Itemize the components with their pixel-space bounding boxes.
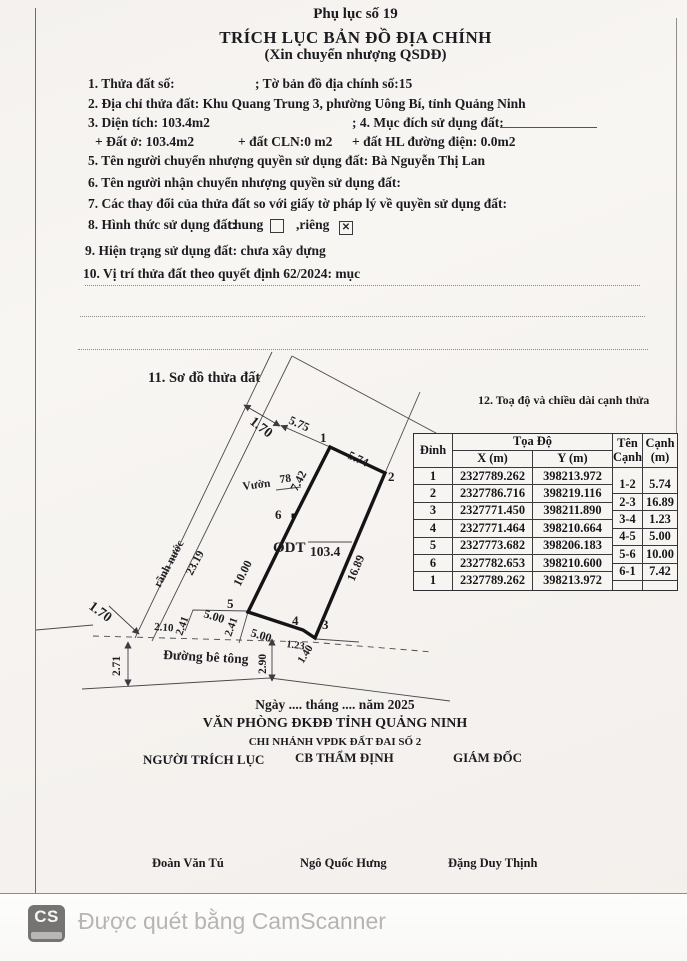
item-8-chung-label: chung [228, 217, 263, 233]
sketch-label: 7.42 [287, 468, 309, 493]
camscanner-caption: Được quét bằng CamScanner [78, 908, 386, 935]
sketch-label: 5.00 [249, 625, 273, 645]
item-8-label: 8. Hình thức sử dụng đất: [88, 217, 236, 233]
dim-1-70-bottom-arrow [109, 606, 139, 634]
camscanner-logo-icon: CS [28, 905, 65, 942]
branch-name: CHI NHÁNH VPDK ĐẤT ĐAI SỐ 2 [35, 736, 635, 748]
sketch-label: 1 [320, 430, 327, 445]
sketch-label: 5 [227, 596, 234, 611]
sketch-label: 2.41 [174, 615, 192, 637]
edge-name: 3-4 [613, 511, 643, 528]
edge-length: 1.23 [643, 511, 677, 528]
vertex-y: 398211.890 [533, 503, 613, 520]
sketch-label: Vườn [242, 478, 272, 493]
left-boundary-segment [36, 625, 93, 630]
role-appraiser: CB THẨM ĐỊNH [295, 750, 394, 766]
sketch-label: 5.75 [287, 413, 312, 434]
vertex-id: 1 [414, 468, 453, 485]
edge-name: 5-6 [613, 546, 643, 563]
item-10: 10. Vị trí thửa đất theo quyết định 62/2… [83, 266, 360, 282]
item-5: 5. Tên người chuyển nhượng quyền sử dụng… [88, 153, 485, 169]
office-name: VĂN PHÒNG ĐKĐĐ TỈNH QUẢNG NINH [35, 716, 635, 732]
sketch-label: Đường bê tông [163, 647, 249, 666]
drain-line-left [135, 352, 272, 638]
sketch-label: 2.41 [223, 616, 241, 638]
coordinate-table: ĐỉnhTọa ĐộX (m)Y (m)TênCạnhCạnh(m)123277… [413, 433, 678, 591]
edge-stub [643, 468, 677, 477]
name-director: Đặng Duy Thịnh [448, 856, 537, 871]
sketch-label: 3 [322, 617, 329, 632]
item-2: 2. Địa chỉ thửa đất: Khu Quang Trung 3, … [88, 96, 526, 112]
item-3-sub-c: + đất HL đường điện: 0.0m2 [352, 134, 516, 150]
checkbox-chung[interactable] [270, 219, 284, 233]
vertex-id: 6 [414, 555, 453, 572]
dotted-line [80, 316, 645, 317]
vertex-id: 2 [414, 485, 453, 502]
vertex-id: 4 [414, 520, 453, 537]
right-boundary-segment [316, 639, 359, 642]
sketch-label: 10.00 [230, 558, 255, 588]
page-title: TRÍCH LỤC BẢN ĐỒ ĐỊA CHÍNH [35, 28, 676, 48]
edge-name: 1-2 [613, 477, 643, 494]
name-appraiser: Ngô Quốc Hưng [300, 856, 387, 871]
header-edge-len: Cạnh(m) [643, 434, 677, 468]
sketch-label: 2.71 [111, 656, 123, 676]
vertex-y: 398206.183 [533, 538, 613, 555]
sketch-label: 2 [388, 469, 395, 484]
edge-name: 2-3 [613, 494, 643, 511]
edge-stub [643, 581, 677, 590]
vertex-x: 2327773.682 [453, 538, 533, 555]
header-y: Y (m) [533, 451, 613, 468]
item-6: 6. Tên người nhận chuyển nhượng quyền sử… [88, 175, 401, 191]
item-8-rieng-label: ,riêng [296, 217, 329, 233]
vertex-id: 1 [414, 572, 453, 589]
vertex-x: 2327786.716 [453, 485, 533, 502]
vertex-x: 2327782.653 [453, 555, 533, 572]
sketch-label: 5.00 [202, 606, 226, 626]
checkbox-rieng-checked[interactable]: ✕ [339, 221, 353, 235]
item-1-label: 1. Thửa đất số: [88, 76, 175, 92]
edge-stub [613, 468, 643, 477]
scanned-document: Phụ lục số 19 TRÍCH LỤC BẢN ĐỒ ĐỊA CHÍNH… [0, 0, 687, 960]
header-edge-name: TênCạnh [613, 434, 643, 468]
tick-at-vertex-5 [239, 612, 248, 643]
vertex-y: 398213.972 [533, 572, 613, 589]
sketch-label: 103.4 [310, 544, 341, 559]
item-1-value: ; Tờ bản đồ địa chính số:15 [255, 76, 412, 92]
date-line: Ngày .... tháng .... năm 2025 [35, 697, 635, 713]
item-3: 3. Diện tích: 103.4m2 [88, 115, 210, 131]
vertex-x: 2327771.450 [453, 503, 533, 520]
sketch-label: 5.74 [346, 448, 371, 470]
vertex-y: 398210.600 [533, 555, 613, 572]
item-4-blank-line [500, 127, 597, 128]
vertex-y: 398213.972 [533, 468, 613, 485]
vertex-x: 2327789.262 [453, 468, 533, 485]
sketch-label: 6 [275, 507, 282, 522]
sketch-label: 23.19 [184, 549, 207, 578]
edge-length: 7.42 [643, 564, 677, 581]
vertex-x: 2327771.464 [453, 520, 533, 537]
header-coords: Tọa Độ [453, 434, 613, 451]
name-extractor: Đoàn Văn Tú [152, 856, 224, 871]
drain-line-right [152, 356, 292, 641]
role-extractor: NGƯỜI TRÍCH LỤC [143, 752, 264, 768]
sketch-label: ODT [273, 540, 306, 556]
item-3-sub-b: + đất CLN:0 m2 [238, 134, 332, 150]
edge-length: 5.00 [643, 529, 677, 546]
sketch-label: 1.70 [86, 599, 115, 626]
edge-name: 4-5 [613, 529, 643, 546]
sketch-label: 2.90 [257, 654, 269, 674]
page-subtitle: (Xin chuyển nhượng QSDĐ) [35, 47, 676, 64]
appendix-label: Phụ lục số 19 [35, 6, 676, 23]
camscanner-logo-text: CS [28, 907, 65, 927]
edge-length: 16.89 [643, 494, 677, 511]
item-9: 9. Hiện trạng sử dụng đất: chưa xây dựng [85, 243, 326, 259]
edge-name: 6-1 [613, 564, 643, 581]
vertex-y: 398210.664 [533, 520, 613, 537]
item-3-sub-a: + Đất ở: 103.4m2 [95, 134, 194, 150]
header-x: X (m) [453, 451, 533, 468]
sketch-label: 4 [292, 613, 299, 628]
vertex-y: 398219.116 [533, 485, 613, 502]
sketch-label: 2.10 [154, 621, 175, 634]
sketch-label: 1.70 [247, 414, 276, 441]
vertex-6-marker [292, 514, 297, 519]
edge-length: 5.74 [643, 477, 677, 494]
edge-length: 10.00 [643, 546, 677, 563]
coordinate-table-wrap: ĐỉnhTọa ĐộX (m)Y (m)TênCạnhCạnh(m)123277… [413, 433, 678, 591]
header-vertex: Đỉnh [414, 434, 453, 468]
edge-stub [613, 581, 643, 590]
camscanner-logo-strip [31, 932, 62, 939]
dotted-line [85, 285, 640, 286]
vertex-id: 5 [414, 538, 453, 555]
role-director: GIÁM ĐỐC [453, 750, 522, 766]
camscanner-bar: CS Được quét bằng CamScanner [0, 893, 687, 961]
parcel-polygon [248, 447, 385, 638]
item-7: 7. Các thay đổi của thửa đất so với giấy… [88, 196, 507, 212]
item-4: ; 4. Mục đích sử dụng đất: [352, 115, 504, 131]
vertex-x: 2327789.262 [453, 572, 533, 589]
vertex-id: 3 [414, 503, 453, 520]
